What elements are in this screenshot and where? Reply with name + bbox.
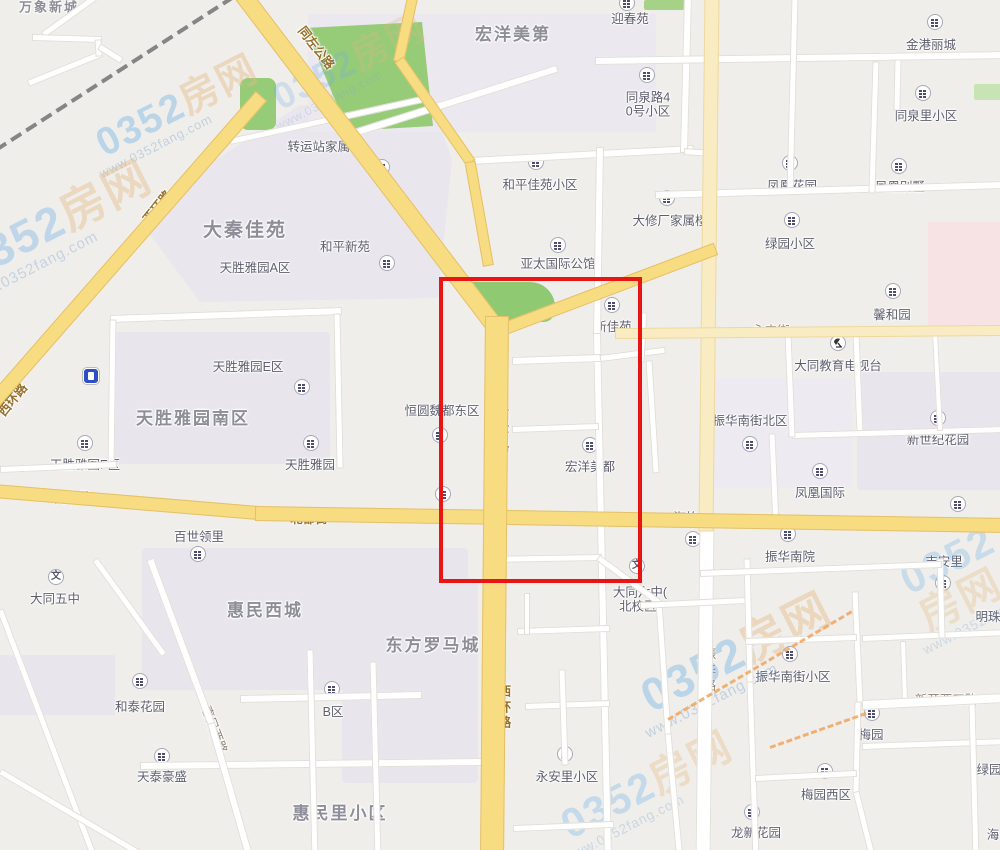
place-label: 梅园西区 <box>801 788 851 802</box>
place-label: 天胜雅园A区 <box>220 261 291 275</box>
place-label: 亚太国际公馆 <box>520 257 595 271</box>
road-segment <box>470 145 694 165</box>
place-label: 大修厂家属楼 <box>632 214 707 228</box>
road-segment <box>646 360 660 473</box>
place-label: 振华南院 <box>765 550 815 564</box>
road-segment <box>334 313 344 468</box>
road-segment <box>747 681 760 850</box>
place-label: 和平佳苑小区 <box>502 178 577 192</box>
highlight-rectangle <box>439 277 642 583</box>
residence-icon <box>742 436 758 452</box>
map-area <box>974 84 1000 100</box>
residence-icon <box>379 255 395 271</box>
residence-icon <box>885 283 901 299</box>
residence-icon <box>915 85 931 101</box>
place-label: 天泰豪盛 <box>137 770 187 784</box>
residence-icon <box>812 463 828 479</box>
residence-icon <box>303 435 319 451</box>
residence-icon <box>927 14 943 30</box>
place-label: 大同五中 <box>30 592 80 606</box>
road-segment <box>525 699 610 709</box>
residence-icon <box>550 237 566 253</box>
place-label: 金港丽城 <box>906 38 956 52</box>
place-label: 绿园 <box>976 763 1000 777</box>
road-segment <box>700 560 942 576</box>
road-segment <box>656 602 672 735</box>
place-label: 绿园小区 <box>765 237 815 251</box>
road-segment <box>852 591 864 703</box>
road-segment <box>900 641 908 703</box>
tv-station-icon <box>830 335 846 351</box>
road-segment <box>853 790 877 850</box>
district-label: 惠民西城 <box>227 601 303 621</box>
road-segment <box>110 307 342 323</box>
place-label: 凤凰国际 <box>795 486 845 500</box>
road-segment <box>680 0 692 153</box>
residence-icon <box>77 435 93 451</box>
road-segment <box>27 50 103 86</box>
road-segment <box>207 722 254 850</box>
map-area <box>928 222 1000 330</box>
road-segment <box>0 484 261 520</box>
map-area <box>112 332 330 464</box>
planned-route-dashed-line <box>769 712 866 749</box>
residence-icon <box>132 673 148 689</box>
place-label: 百世领里 <box>174 530 224 544</box>
place-label: 大同教育电视台 <box>794 359 882 373</box>
place-label: 海 <box>987 828 1000 842</box>
place-label: 永安里小区 <box>536 770 599 784</box>
place-label: 明珠 <box>975 610 1000 624</box>
residence-icon <box>950 496 966 512</box>
place-label: 迎春苑 <box>611 12 649 26</box>
place-label: 和泰花园 <box>115 700 165 714</box>
road-segment <box>524 593 530 635</box>
district-label: 东方罗马城 <box>386 636 481 656</box>
road-segment <box>755 769 857 781</box>
residence-icon <box>619 0 635 11</box>
road-segment <box>32 34 102 43</box>
place-label: 同泉里小区 <box>895 109 958 123</box>
map-area <box>644 0 686 10</box>
residence-icon <box>639 67 655 83</box>
road-segment <box>615 324 1000 338</box>
road-segment <box>937 558 946 638</box>
school-icon: 文 <box>48 569 64 585</box>
map-canvas[interactable]: 文文 万象新城宏洋美第大秦佳苑天胜雅园南区惠民西城东方罗马城惠民里小区迎春苑金港… <box>0 0 1000 850</box>
place-label: B区 <box>323 705 344 719</box>
place-label: 梅园 <box>858 728 883 742</box>
road-segment <box>868 61 879 193</box>
place-label: 和平新苑 <box>320 240 370 254</box>
map-area <box>342 578 478 783</box>
place-label: 馨和园 <box>873 308 911 322</box>
residence-icon <box>784 212 800 228</box>
district-label: 宏洋美第 <box>475 25 551 45</box>
place-label: 振华南街小区 <box>755 670 830 684</box>
district-label: 大秦佳苑 <box>203 220 287 242</box>
residence-icon <box>891 158 907 174</box>
road-segment <box>665 733 684 850</box>
place-label: 同泉路40号小区 <box>626 91 670 120</box>
road-segment <box>862 628 1000 641</box>
district-label: 天胜雅园南区 <box>136 409 250 429</box>
road-segment <box>893 59 901 110</box>
planned-route-dashed-line <box>667 610 853 721</box>
place-label: 天胜雅园E区 <box>213 360 284 374</box>
place-label: 天胜雅园 <box>285 458 335 472</box>
road-segment <box>465 160 494 266</box>
site-watermark: 0352房网www.0352fang.com <box>554 724 746 850</box>
residence-icon <box>294 379 310 395</box>
road-segment <box>0 608 99 850</box>
road-segment <box>517 624 610 634</box>
road-segment <box>744 558 754 683</box>
place-label: 振华南街北区 <box>712 414 787 428</box>
road-segment <box>513 820 614 831</box>
residence-icon <box>190 546 206 562</box>
gas-station-icon <box>83 368 99 384</box>
